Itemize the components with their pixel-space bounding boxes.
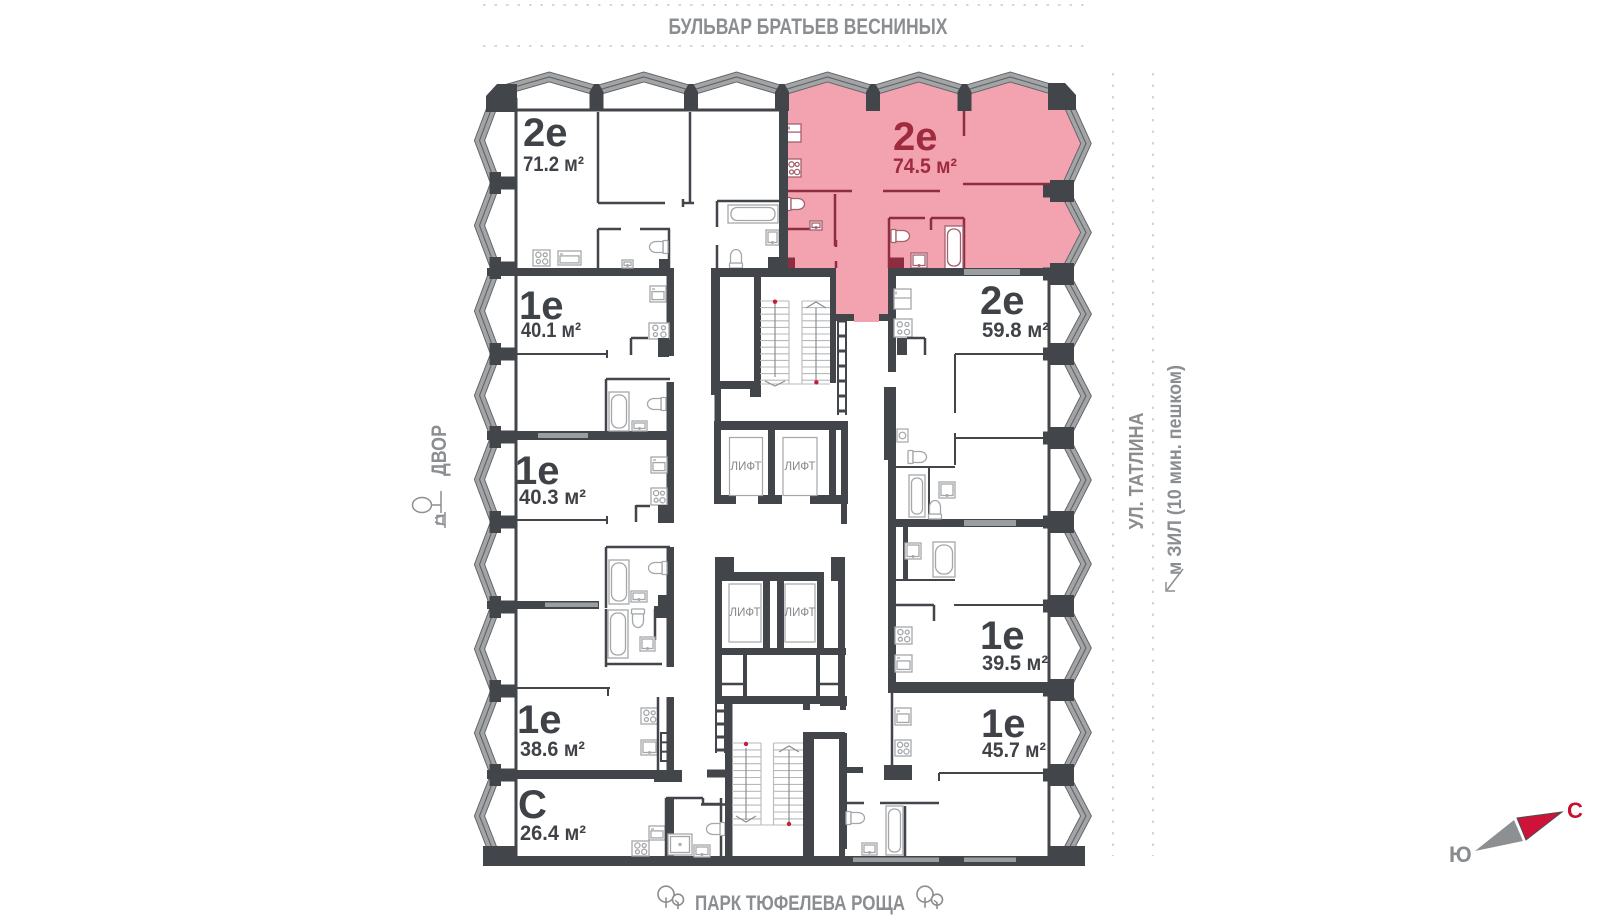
svg-text:ПАРК ТЮФЕЛЕВА РОЩА: ПАРК ТЮФЕЛЕВА РОЩА: [695, 891, 905, 915]
svg-text:71.2 м²: 71.2 м²: [523, 153, 584, 176]
svg-text:40.1 м²: 40.1 м²: [521, 319, 581, 342]
svg-text:2е: 2е: [893, 115, 938, 159]
svg-text:ЛИФТ: ЛИФТ: [731, 461, 762, 473]
svg-text:2е: 2е: [523, 111, 568, 155]
svg-text:ДВОР: ДВОР: [428, 425, 451, 476]
svg-text:40.3 м²: 40.3 м²: [519, 486, 586, 509]
svg-text:2е: 2е: [980, 279, 1025, 323]
svg-text:38.6 м²: 38.6 м²: [520, 738, 585, 761]
svg-text:74.5 м²: 74.5 м²: [893, 155, 957, 178]
svg-text:ЛИФТ: ЛИФТ: [785, 461, 816, 473]
svg-text:ЛИФТ: ЛИФТ: [730, 607, 761, 619]
svg-text:УЛ. ТАТЛИНА: УЛ. ТАТЛИНА: [1126, 413, 1148, 530]
svg-text:39.5 м²: 39.5 м²: [982, 652, 1048, 675]
svg-text:59.8 м²: 59.8 м²: [982, 319, 1049, 342]
svg-text:БУЛЬВАР БРАТЬЕВ ВЕСНИНЫХ: БУЛЬВАР БРАТЬЕВ ВЕСНИНЫХ: [669, 14, 948, 39]
svg-text:м ЗИЛ (10 мин. пешком): м ЗИЛ (10 мин. пешком): [1165, 365, 1186, 575]
svg-text:ЛИФТ: ЛИФТ: [785, 607, 816, 619]
svg-text:С: С: [1567, 798, 1583, 823]
svg-text:26.4 м²: 26.4 м²: [520, 822, 586, 845]
svg-text:С: С: [518, 783, 547, 827]
svg-text:Ю: Ю: [1449, 842, 1472, 867]
svg-text:1е: 1е: [517, 698, 562, 742]
svg-text:45.7 м²: 45.7 м²: [982, 739, 1046, 762]
